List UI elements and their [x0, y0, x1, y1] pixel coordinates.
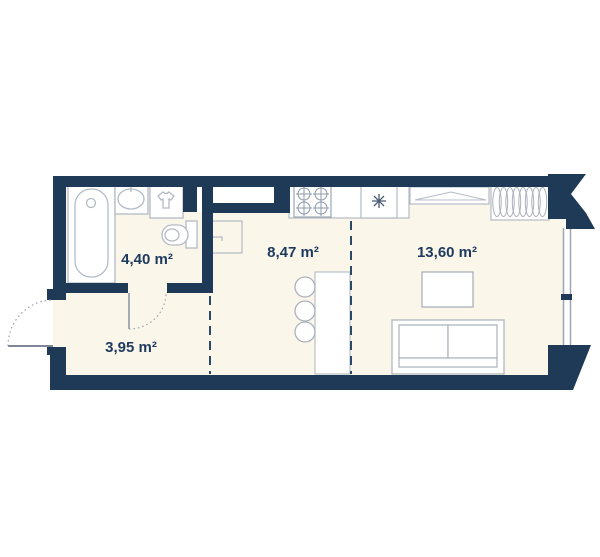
wall-kitchen-vertical	[202, 176, 213, 293]
area-label-kitchen: 8,47 m²	[267, 244, 319, 261]
coffee-table-icon	[422, 272, 473, 307]
sink-asterisk-icon	[372, 194, 386, 208]
window-mullion	[561, 294, 572, 300]
bar-stool-icon	[295, 301, 315, 321]
wall-gap-sliver	[197, 187, 202, 212]
ventilation-shaft	[213, 187, 274, 203]
bar-stools	[295, 277, 315, 342]
wall-bathroom-left	[53, 283, 128, 293]
floor-plan-svg: 4,40 m² 8,47 m² 13,60 m² 3,95 m²	[0, 0, 600, 557]
wall-left-upper	[53, 176, 66, 300]
area-label-hallway: 3,95 m²	[105, 339, 157, 356]
bar-stool-icon	[295, 277, 315, 297]
bar-stool-icon	[295, 322, 315, 342]
area-label-bathroom: 4,40 m²	[121, 251, 173, 268]
entrance-door-swing	[8, 300, 53, 346]
wall-bathroom-stub	[183, 176, 197, 212]
wall-shaft-right	[274, 176, 290, 213]
sofa-bed-icon	[392, 320, 504, 374]
wall-top	[53, 176, 560, 187]
window	[561, 228, 572, 346]
wall-corner-bottom-right	[548, 345, 591, 390]
floor-plan: 4,40 m² 8,47 m² 13,60 m² 3,95 m²	[0, 0, 600, 557]
door-jamb	[47, 289, 54, 300]
toilet-icon	[162, 225, 188, 245]
door-jamb	[47, 347, 51, 355]
washing-machine-icon	[150, 184, 183, 218]
floor-door-gap	[53, 300, 67, 347]
kitchen-island	[315, 272, 350, 374]
area-label-living-room: 13,60 m²	[417, 244, 477, 261]
wall-bottom	[50, 375, 560, 390]
